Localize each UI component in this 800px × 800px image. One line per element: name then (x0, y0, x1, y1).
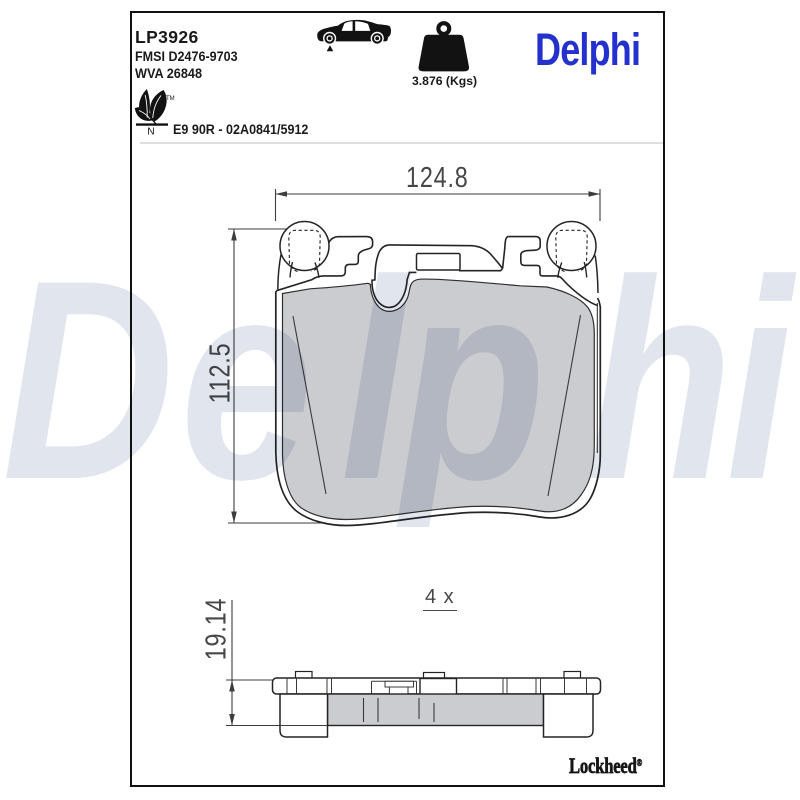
svg-text:N: N (147, 127, 154, 138)
svg-text:TM: TM (166, 96, 175, 102)
